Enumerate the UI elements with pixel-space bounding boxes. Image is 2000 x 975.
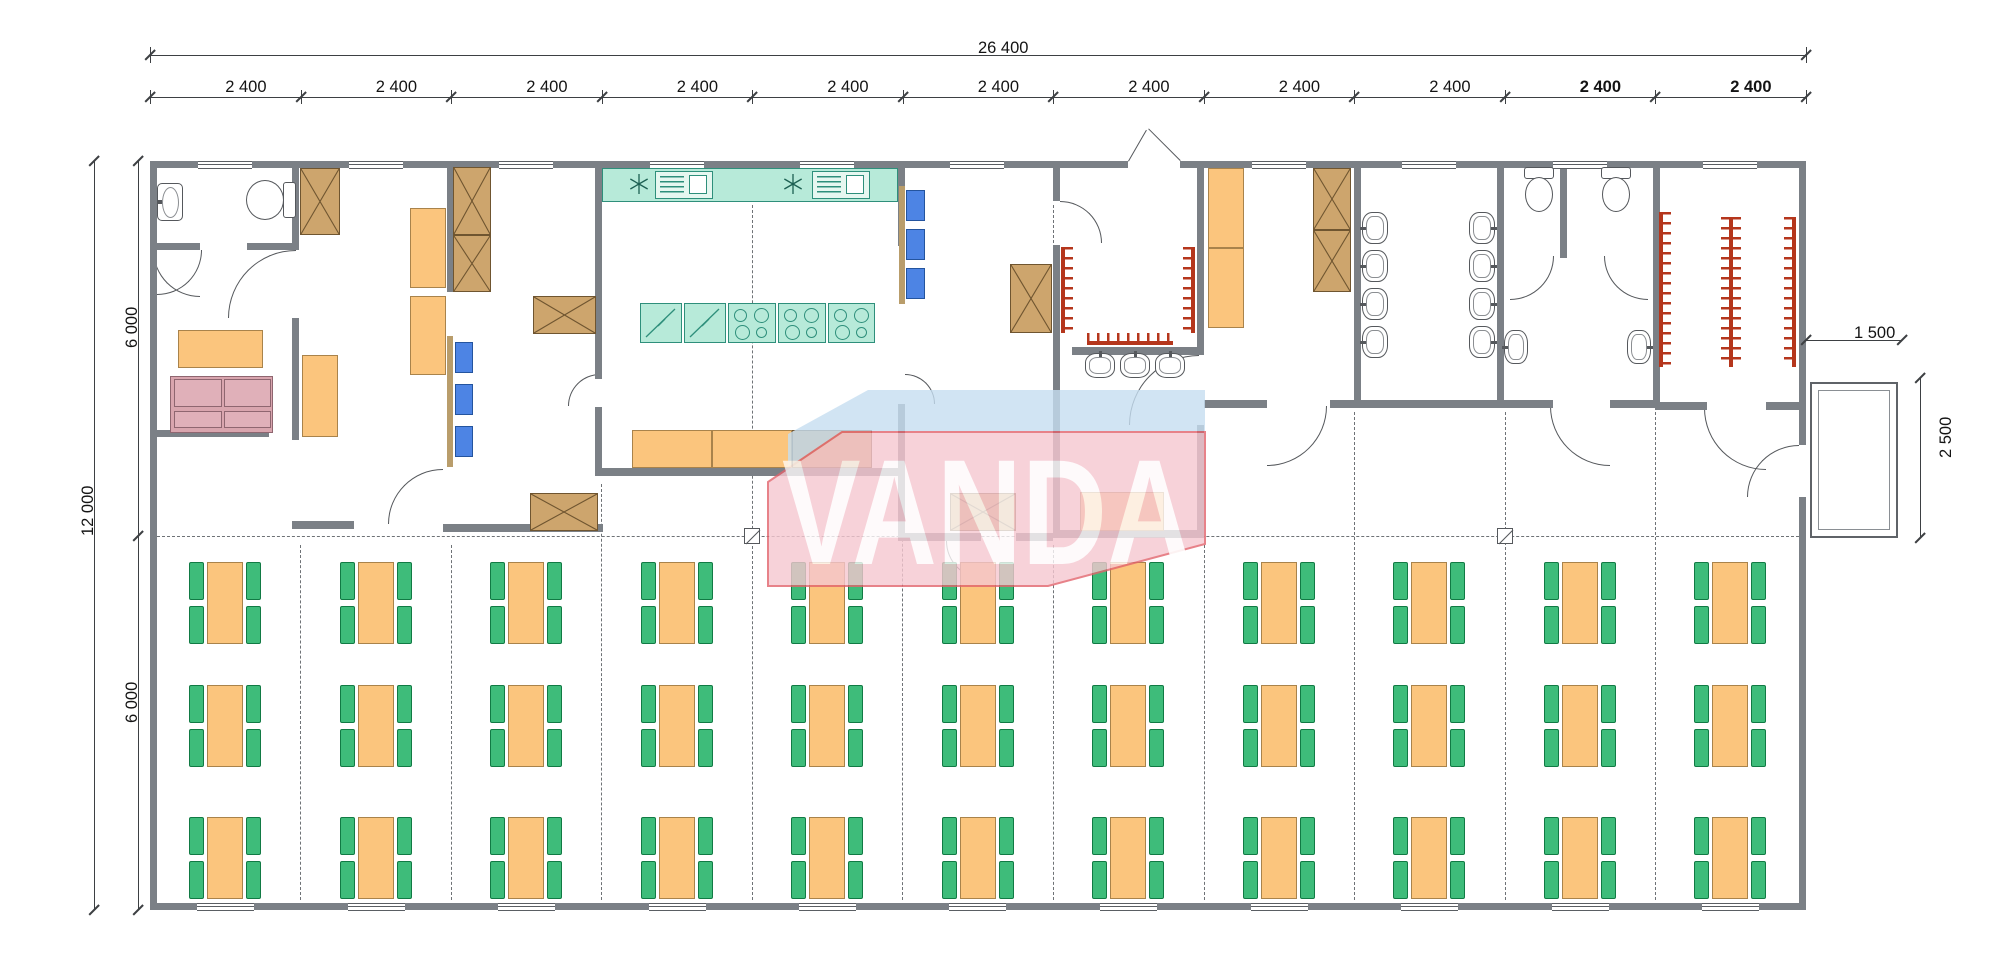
dining-table xyxy=(358,562,394,644)
window xyxy=(1401,903,1458,911)
locker-icon xyxy=(1208,168,1244,248)
chair-icon xyxy=(942,685,957,723)
chair-icon xyxy=(1393,606,1408,644)
chair-icon xyxy=(1243,861,1258,899)
dimension-ext xyxy=(301,90,302,104)
chair-icon xyxy=(1694,606,1709,644)
chair-icon xyxy=(340,562,355,600)
dining-table-group xyxy=(1544,560,1616,646)
wall xyxy=(1655,402,1707,410)
dining-table-group xyxy=(189,560,261,646)
chair-icon xyxy=(189,817,204,855)
chair-icon xyxy=(397,606,412,644)
chair-icon xyxy=(791,606,806,644)
dining-table xyxy=(1261,685,1297,767)
window xyxy=(950,161,1004,169)
window xyxy=(198,161,252,169)
chair-icon xyxy=(397,729,412,767)
cabinet-icon xyxy=(530,493,598,531)
dining-table xyxy=(659,685,695,767)
chair-icon xyxy=(1544,729,1559,767)
dining-table-group xyxy=(641,560,713,646)
chair-icon xyxy=(848,861,863,899)
chair-icon xyxy=(1149,817,1164,855)
dining-table-group xyxy=(1243,815,1315,901)
wall xyxy=(247,243,299,250)
wall xyxy=(292,318,299,440)
chair-icon xyxy=(1751,861,1766,899)
chair-icon xyxy=(547,861,562,899)
kitchen-sink-icon xyxy=(812,171,870,199)
coat-rack-icon xyxy=(1087,341,1173,345)
chair-icon xyxy=(1149,606,1164,644)
dining-table xyxy=(960,817,996,899)
chair-icon xyxy=(641,729,656,767)
chair-icon xyxy=(1601,562,1616,600)
shelf-box-icon xyxy=(906,190,925,221)
window xyxy=(498,903,555,911)
dining-table xyxy=(358,817,394,899)
sink-tap xyxy=(158,200,162,204)
wall xyxy=(1766,402,1799,410)
window xyxy=(1703,161,1757,169)
dining-table xyxy=(1411,685,1447,767)
wall xyxy=(150,243,200,250)
washbasin-tap xyxy=(1360,265,1366,268)
chair-icon xyxy=(1393,861,1408,899)
chair-icon xyxy=(246,817,261,855)
washbasin-tap xyxy=(1491,265,1497,268)
dining-table-group xyxy=(641,815,713,901)
door-arc xyxy=(1510,256,1554,300)
chair-icon xyxy=(848,729,863,767)
dining-table-group xyxy=(1393,683,1465,769)
cooktop-icon xyxy=(778,303,826,343)
table-or-desk xyxy=(302,355,338,437)
chair-icon xyxy=(1092,861,1107,899)
chair-icon xyxy=(1243,817,1258,855)
drainboard-lines xyxy=(660,176,684,193)
burner xyxy=(734,309,747,322)
window xyxy=(649,903,706,911)
dimension-ext xyxy=(752,90,753,104)
sofa-icon xyxy=(170,376,273,433)
chair-icon xyxy=(547,562,562,600)
chair-icon xyxy=(1243,562,1258,600)
chair-icon xyxy=(1243,729,1258,767)
window xyxy=(1702,903,1759,911)
chair-icon xyxy=(1601,685,1616,723)
chair-icon xyxy=(1450,817,1465,855)
chair-icon xyxy=(1601,606,1616,644)
washbasin-bowl xyxy=(1473,330,1491,354)
burner xyxy=(784,309,797,322)
fridge-icon xyxy=(684,303,726,343)
chair-icon xyxy=(246,729,261,767)
chair-icon xyxy=(1544,606,1559,644)
chair-icon xyxy=(1393,562,1408,600)
burner xyxy=(806,327,817,338)
chair-icon xyxy=(1450,685,1465,723)
chair-icon xyxy=(641,606,656,644)
wall xyxy=(595,161,602,379)
dining-table xyxy=(1261,562,1297,644)
chair-icon xyxy=(1300,562,1315,600)
sink-basin xyxy=(689,175,707,194)
chair-icon xyxy=(397,861,412,899)
cooktop-icon xyxy=(828,303,875,343)
dining-table xyxy=(358,685,394,767)
dining-table xyxy=(207,685,243,767)
chair-icon xyxy=(547,729,562,767)
chair-icon xyxy=(1450,729,1465,767)
dining-table xyxy=(1411,562,1447,644)
dining-table xyxy=(809,817,845,899)
burner xyxy=(835,325,850,340)
window xyxy=(949,903,1006,911)
coat-rack-hooks xyxy=(1733,217,1741,367)
washbasin-bowl xyxy=(1473,216,1491,240)
dimension-ext xyxy=(602,90,603,104)
chair-icon xyxy=(547,685,562,723)
dimension-ext xyxy=(451,90,452,104)
chair-icon xyxy=(1149,861,1164,899)
chair-icon xyxy=(1694,861,1709,899)
washbasin-bowl xyxy=(1159,357,1181,374)
toilet-bowl xyxy=(246,180,284,220)
window xyxy=(799,903,856,911)
lamp-symbol-icon xyxy=(783,174,803,194)
dining-table-group xyxy=(942,683,1014,769)
chair-icon xyxy=(189,562,204,600)
grid-line xyxy=(1053,205,1054,243)
dining-table xyxy=(508,817,544,899)
chair-icon xyxy=(698,861,713,899)
dimension-ext xyxy=(1204,90,1205,104)
chair-icon xyxy=(1751,562,1766,600)
floor-plan-drawing: 26 4002 4002 4002 4002 4002 4002 4002 40… xyxy=(0,0,2000,975)
chair-icon xyxy=(397,685,412,723)
dimension-ext xyxy=(1806,90,1807,104)
chair-icon xyxy=(791,817,806,855)
dining-table xyxy=(1110,817,1146,899)
chair-icon xyxy=(999,861,1014,899)
chair-icon xyxy=(1300,606,1315,644)
door-arc xyxy=(1704,408,1766,470)
cabinet-icon xyxy=(1010,264,1052,333)
dining-table-group xyxy=(490,815,562,901)
sofa-cushion xyxy=(174,379,222,407)
washbasin-tap xyxy=(1502,346,1508,349)
cabinet-icon xyxy=(300,168,340,235)
wall xyxy=(1354,161,1361,408)
sofa-cushion xyxy=(224,411,272,428)
dining-table xyxy=(1261,817,1297,899)
cabinet-icon xyxy=(533,296,596,334)
chair-icon xyxy=(246,861,261,899)
burner xyxy=(804,308,819,323)
dining-table-group xyxy=(641,683,713,769)
sink-basin xyxy=(846,175,864,194)
chair-icon xyxy=(189,606,204,644)
door-leaf-line xyxy=(1148,128,1181,161)
door-arc xyxy=(1604,256,1648,300)
chair-icon xyxy=(1092,729,1107,767)
window xyxy=(348,903,405,911)
shelf-box-icon xyxy=(906,229,925,260)
dining-table-group xyxy=(1694,815,1766,901)
washbasin-tap xyxy=(1134,351,1137,357)
table-or-desk xyxy=(410,208,446,288)
dining-table xyxy=(1411,817,1447,899)
chair-icon xyxy=(999,729,1014,767)
door-arc xyxy=(1267,406,1327,466)
burner xyxy=(785,325,800,340)
chair-icon xyxy=(1694,562,1709,600)
locker-icon xyxy=(1208,248,1244,328)
dining-table-group xyxy=(1243,560,1315,646)
washbasin-bowl xyxy=(1473,292,1491,316)
chair-icon xyxy=(1092,817,1107,855)
dining-table xyxy=(960,685,996,767)
chair-icon xyxy=(1300,817,1315,855)
window xyxy=(1100,903,1157,911)
wall xyxy=(1330,400,1553,408)
wall xyxy=(1560,161,1567,258)
dining-table-group xyxy=(1544,815,1616,901)
dining-table xyxy=(1110,685,1146,767)
washbasin-bowl xyxy=(1089,357,1111,374)
washbasin-bowl xyxy=(1366,254,1384,278)
cabinet-icon xyxy=(453,167,491,235)
chair-icon xyxy=(942,861,957,899)
dimension-line xyxy=(1920,378,1921,538)
chair-icon xyxy=(999,817,1014,855)
chair-icon xyxy=(848,606,863,644)
chair-icon xyxy=(246,562,261,600)
chair-icon xyxy=(698,685,713,723)
dining-table-group xyxy=(189,683,261,769)
wall xyxy=(1197,161,1204,355)
table-or-desk xyxy=(632,430,712,468)
burner xyxy=(756,327,767,338)
window xyxy=(349,161,403,169)
table-or-desk xyxy=(410,296,446,375)
burner xyxy=(754,308,769,323)
chair-icon xyxy=(1751,817,1766,855)
washbasin-tap xyxy=(1491,341,1497,344)
washbasin-bowl xyxy=(1366,292,1384,316)
dining-table xyxy=(1562,562,1598,644)
chair-icon xyxy=(1751,729,1766,767)
chair-icon xyxy=(340,817,355,855)
chair-icon xyxy=(1694,685,1709,723)
kitchen-sink-icon xyxy=(655,171,713,199)
chair-icon xyxy=(1092,606,1107,644)
chair-icon xyxy=(340,861,355,899)
dining-table-group xyxy=(490,683,562,769)
wall xyxy=(150,161,157,910)
chair-icon xyxy=(999,685,1014,723)
grid-line xyxy=(1204,545,1205,900)
chair-icon xyxy=(641,562,656,600)
grid-line xyxy=(1655,412,1656,900)
coat-rack-hooks xyxy=(1721,217,1729,367)
chair-icon xyxy=(641,861,656,899)
dimension-ext xyxy=(1655,90,1656,104)
wall xyxy=(1799,497,1806,910)
chair-icon xyxy=(1601,817,1616,855)
door-arc xyxy=(1550,406,1610,466)
dining-table-group xyxy=(1243,683,1315,769)
dining-table xyxy=(659,562,695,644)
chair-icon xyxy=(1149,685,1164,723)
grid-line xyxy=(451,545,452,900)
coat-rack-hooks xyxy=(1183,247,1191,333)
grid-line xyxy=(300,545,301,900)
window xyxy=(1251,903,1308,911)
floor-plan-canvas: 26 4002 4002 4002 4002 4002 4002 4002 40… xyxy=(0,0,2000,975)
column-marker xyxy=(744,528,760,544)
dining-table xyxy=(659,817,695,899)
chair-icon xyxy=(1450,606,1465,644)
chair-icon xyxy=(1544,861,1559,899)
shelf-box-icon xyxy=(455,342,473,373)
dining-table-group xyxy=(340,815,412,901)
chair-icon xyxy=(848,685,863,723)
toilet-bowl xyxy=(1525,177,1553,212)
chair-icon xyxy=(340,729,355,767)
chair-icon xyxy=(1393,685,1408,723)
chair-icon xyxy=(1544,685,1559,723)
dining-table-group xyxy=(1694,683,1766,769)
chair-icon xyxy=(1300,685,1315,723)
chair-icon xyxy=(1393,729,1408,767)
cooktop-icon xyxy=(728,303,776,343)
chair-icon xyxy=(942,729,957,767)
grid-line xyxy=(1505,412,1506,900)
wall xyxy=(595,407,602,476)
cabinet-icon xyxy=(1313,168,1351,230)
chair-icon xyxy=(1601,729,1616,767)
chair-icon xyxy=(189,729,204,767)
wall xyxy=(1497,161,1504,408)
cabinet-icon xyxy=(1313,230,1351,292)
chair-icon xyxy=(397,562,412,600)
dining-table xyxy=(207,562,243,644)
dining-table-group xyxy=(1544,683,1616,769)
window xyxy=(197,903,254,911)
dining-table-group xyxy=(1393,560,1465,646)
sofa-cushion xyxy=(224,379,272,407)
chair-icon xyxy=(1092,685,1107,723)
wall xyxy=(1610,400,1655,408)
dining-table xyxy=(1712,685,1748,767)
chair-icon xyxy=(641,817,656,855)
chair-icon xyxy=(641,685,656,723)
dining-table-group xyxy=(942,815,1014,901)
wall xyxy=(1053,161,1060,201)
washbasin-tap xyxy=(1491,303,1497,306)
chair-icon xyxy=(189,685,204,723)
chair-icon xyxy=(1694,729,1709,767)
washbasin-bowl xyxy=(1366,330,1384,354)
washbasin-bowl xyxy=(1631,334,1647,360)
shelf-strip xyxy=(899,186,905,304)
dining-table xyxy=(207,817,243,899)
wall xyxy=(1799,161,1806,445)
washbasin-tap xyxy=(1491,227,1497,230)
chair-icon xyxy=(490,685,505,723)
dining-table-group xyxy=(189,815,261,901)
dining-table-group xyxy=(340,683,412,769)
lamp-symbol-icon xyxy=(629,174,649,194)
chair-icon xyxy=(1450,562,1465,600)
wall xyxy=(1204,400,1267,408)
chair-icon xyxy=(246,606,261,644)
door-leaf-line xyxy=(1128,130,1147,162)
dining-table xyxy=(508,562,544,644)
chair-icon xyxy=(942,817,957,855)
dimension-ext xyxy=(1354,90,1355,104)
dining-table-group xyxy=(490,560,562,646)
drainboard-lines xyxy=(817,176,841,193)
burner xyxy=(856,327,867,338)
coat-rack-icon xyxy=(1191,247,1195,333)
chair-icon xyxy=(547,817,562,855)
chair-icon xyxy=(791,729,806,767)
window xyxy=(1252,161,1306,169)
chair-icon xyxy=(698,817,713,855)
wall xyxy=(292,521,354,529)
dimension-ext xyxy=(1505,90,1506,104)
sofa-cushion xyxy=(174,411,222,428)
dining-table-group xyxy=(1092,815,1164,901)
burner xyxy=(854,308,869,323)
door-arc xyxy=(388,469,443,524)
dining-table xyxy=(1712,817,1748,899)
shelf-box-icon xyxy=(906,268,925,299)
chair-icon xyxy=(1149,729,1164,767)
chair-icon xyxy=(1544,562,1559,600)
dining-table-group xyxy=(791,815,863,901)
window xyxy=(1553,161,1607,169)
dining-table-group xyxy=(1092,683,1164,769)
watermark-text: VANDA xyxy=(782,428,1192,596)
chair-icon xyxy=(189,861,204,899)
window xyxy=(499,161,553,169)
porch-inner-outline xyxy=(1818,390,1890,530)
toilet-tank xyxy=(283,182,296,218)
coat-rack-hooks xyxy=(1087,333,1173,341)
chair-icon xyxy=(1751,685,1766,723)
window xyxy=(1402,161,1456,169)
chair-icon xyxy=(1751,606,1766,644)
toilet-bowl xyxy=(1602,177,1630,212)
dimension-line xyxy=(150,97,1806,98)
chair-icon xyxy=(698,606,713,644)
chair-icon xyxy=(490,729,505,767)
dining-table xyxy=(508,685,544,767)
window xyxy=(1552,903,1609,911)
chair-icon xyxy=(1694,817,1709,855)
chair-icon xyxy=(490,606,505,644)
chair-icon xyxy=(397,817,412,855)
washbasin-tap xyxy=(1099,351,1102,357)
chair-icon xyxy=(999,606,1014,644)
washbasin-tap xyxy=(1360,227,1366,230)
chair-icon xyxy=(791,685,806,723)
